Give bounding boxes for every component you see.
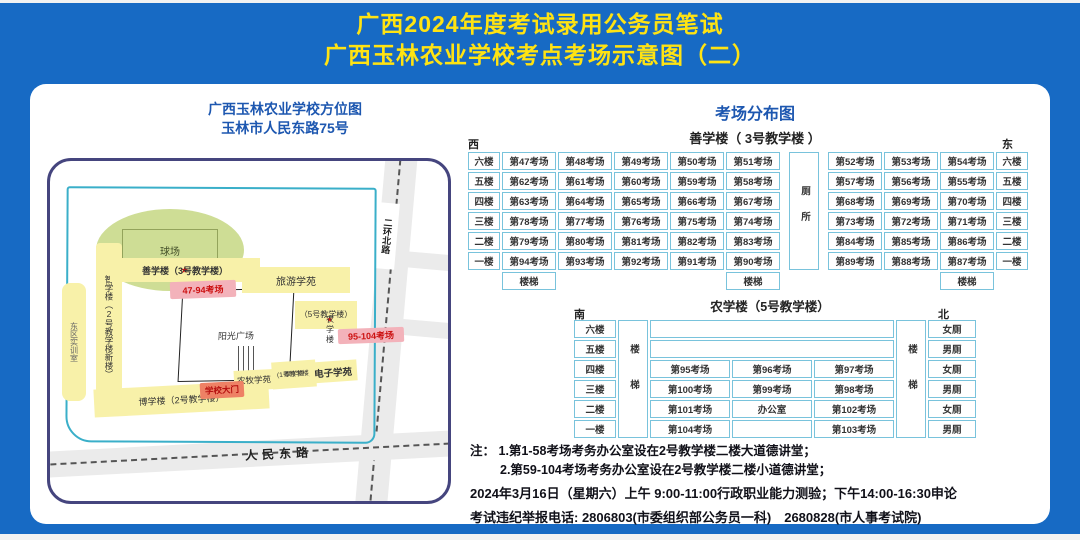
floor-label-cell: 一楼 bbox=[468, 252, 500, 270]
empty-cell bbox=[670, 272, 724, 290]
exam-room-cell: 第72考场 bbox=[884, 212, 938, 230]
exam-room-cell: 第76考场 bbox=[614, 212, 668, 230]
building1-name: 善学楼（ 3号教学楼 ） bbox=[480, 128, 1030, 147]
empty-cell bbox=[821, 272, 826, 290]
floor-label-cell: 五楼 bbox=[996, 172, 1028, 190]
floor-label-cell: 四楼 bbox=[468, 192, 500, 210]
poster-title-line2: 广西玉林农业学校考点考场示意图（二） bbox=[0, 40, 1080, 71]
exam-room-cell: 第92考场 bbox=[614, 252, 668, 270]
exam-room-cell: 第70考场 bbox=[940, 192, 994, 210]
exam-room-cell: 第101考场 bbox=[650, 400, 730, 418]
tourism-building: 旅游学苑 bbox=[242, 267, 350, 293]
building2-name: 农学楼（5号教学楼） bbox=[570, 296, 970, 315]
exam-room-cell: 第74考场 bbox=[726, 212, 780, 230]
bottom-edge-strip bbox=[0, 534, 1080, 540]
exam-room-cell: 第98考场 bbox=[814, 380, 894, 398]
exam-room-cell: 第54考场 bbox=[940, 152, 994, 170]
side-road-stub bbox=[397, 319, 451, 340]
empty-cell bbox=[884, 272, 938, 290]
floor-label-cell: 五楼 bbox=[468, 172, 500, 190]
exam-room-cell: 第93考场 bbox=[558, 252, 612, 270]
building2-table: 六楼楼梯楼梯女厕五楼男厕四楼第95考场第96考场第97考场女厕三楼第100考场第… bbox=[572, 318, 978, 440]
rooms-95-104-badge: 95-104考场 bbox=[338, 327, 404, 344]
school-gate: 学校大门 bbox=[200, 381, 245, 399]
floor-label-cell: 二楼 bbox=[468, 232, 500, 250]
exam-room-cell: 第63考场 bbox=[502, 192, 556, 210]
exam-room-cell: 第51考场 bbox=[726, 152, 780, 170]
toilet-cell: 厕所 bbox=[789, 152, 819, 270]
exam-room-cell: 第75考场 bbox=[670, 212, 724, 230]
stairs-cell: 楼梯 bbox=[940, 272, 994, 290]
poster-title: 广西2024年度考试录用公务员笔试 广西玉林农业学校考点考场示意图（二） bbox=[0, 9, 1080, 71]
spacer-cell bbox=[821, 152, 826, 270]
road-label-renmin: 人民东路 bbox=[245, 443, 314, 464]
shanxue-building-label: ★ 善学楼（3号教学楼） bbox=[110, 258, 260, 282]
exam-room-cell: 第65考场 bbox=[614, 192, 668, 210]
stairs-cell: 楼梯 bbox=[502, 272, 556, 290]
exam-room-cell: 第81考场 bbox=[614, 232, 668, 250]
toilet-cell: 男厕 bbox=[928, 340, 976, 358]
exam-room-cell: 第47考场 bbox=[502, 152, 556, 170]
distribution-title: 考场分布图 bbox=[480, 100, 1030, 124]
rooms-47-94-badge: 47-94考场 bbox=[170, 280, 237, 299]
stairs-cell: 楼梯 bbox=[896, 320, 926, 438]
training-room-building: 东区实训室 bbox=[62, 283, 86, 401]
floor-label-cell: 一楼 bbox=[996, 252, 1028, 270]
spacer-cell bbox=[782, 152, 787, 270]
empty-cell bbox=[828, 272, 882, 290]
exam-room-cell: 第77考场 bbox=[558, 212, 612, 230]
floor-label-cell: 六楼 bbox=[574, 320, 616, 338]
exam-room-cell: 第49考场 bbox=[614, 152, 668, 170]
floor-label-cell: 四楼 bbox=[996, 192, 1028, 210]
floor-label-cell: 六楼 bbox=[996, 152, 1028, 170]
exam-room-cell: 第68考场 bbox=[828, 192, 882, 210]
exam-room-cell: 第56考场 bbox=[884, 172, 938, 190]
empty-cell bbox=[558, 272, 612, 290]
exam-room-cell: 第58考场 bbox=[726, 172, 780, 190]
exam-room-cell: 第89考场 bbox=[828, 252, 882, 270]
floor-label-cell: 二楼 bbox=[574, 400, 616, 418]
exam-room-cell: 第97考场 bbox=[814, 360, 894, 378]
exam-room-cell: 第83考场 bbox=[726, 232, 780, 250]
exam-room-cell: 第91考场 bbox=[670, 252, 724, 270]
note-line3: 2024年3月16日（星期六）上午 9:00-11:00行政职业能力测验；下午1… bbox=[470, 483, 1030, 504]
map-title: 广西玉林农业学校方位图 玉林市人民东路75号 bbox=[90, 100, 480, 138]
note-label: 注： bbox=[470, 444, 495, 458]
top-edge-strip bbox=[0, 0, 1080, 3]
toilet-cell: 男厕 bbox=[928, 420, 976, 438]
exam-room-cell: 第100考场 bbox=[650, 380, 730, 398]
exam-room-cell: 第95考场 bbox=[650, 360, 730, 378]
exam-room-cell: 第94考场 bbox=[502, 252, 556, 270]
stairs-cell: 楼梯 bbox=[618, 320, 648, 438]
exam-room-cell: 第57考场 bbox=[828, 172, 882, 190]
note-line2: 2.第59-104考场考务办公室设在2号教学楼二楼小道德讲堂； bbox=[470, 461, 1030, 480]
empty-cell bbox=[614, 272, 668, 290]
exam-room-cell: 第102考场 bbox=[814, 400, 894, 418]
exam-room-cell: 第53考场 bbox=[884, 152, 938, 170]
stairs-cell: 楼梯 bbox=[726, 272, 780, 290]
empty-room-cell bbox=[650, 340, 894, 358]
agronomy-building-label: ★农学楼 （5号教学楼） bbox=[295, 301, 357, 329]
floor-label-cell: 三楼 bbox=[996, 212, 1028, 230]
empty-cell bbox=[468, 272, 500, 290]
empty-cell bbox=[789, 272, 819, 290]
agronomy-line2: （5号教学楼） bbox=[300, 310, 352, 320]
exam-room-cell: 第69考场 bbox=[884, 192, 938, 210]
floor-label-cell: 五楼 bbox=[574, 340, 616, 358]
exam-room-cell: 第86考场 bbox=[940, 232, 994, 250]
exam-room-cell: 第87考场 bbox=[940, 252, 994, 270]
exam-room-cell: 第80考场 bbox=[558, 232, 612, 250]
exam-room-cell: 第104考场 bbox=[650, 420, 730, 438]
exam-room-cell: 第64考场 bbox=[558, 192, 612, 210]
shanxue-building-text: 善学楼（3号教学楼） bbox=[142, 264, 228, 277]
exam-room-cell: 第71考场 bbox=[940, 212, 994, 230]
floor-label-cell: 六楼 bbox=[468, 152, 500, 170]
office-cell: 办公室 bbox=[732, 400, 812, 418]
building1-table: 六楼第47考场第48考场第49考场第50考场第51考场厕所第52考场第53考场第… bbox=[466, 150, 1030, 292]
exam-room-cell: 第82考场 bbox=[670, 232, 724, 250]
notes-block: 注： 1.第1-58考场考务办公室设在2号教学楼二楼大道德讲堂； 2.第59-1… bbox=[470, 442, 1030, 528]
floor-label-cell: 二楼 bbox=[996, 232, 1028, 250]
path-ticks bbox=[238, 346, 255, 372]
map-title-line1: 广西玉林农业学校方位图 bbox=[90, 100, 480, 119]
floor-label-cell: 四楼 bbox=[574, 360, 616, 378]
floor-label-cell: 一楼 bbox=[574, 420, 616, 438]
exam-room-cell: 第66考场 bbox=[670, 192, 724, 210]
exam-room-cell: 第55考场 bbox=[940, 172, 994, 190]
exam-room-cell: 第52考场 bbox=[828, 152, 882, 170]
empty-cell bbox=[996, 272, 1028, 290]
toilet-cell: 女厕 bbox=[928, 400, 976, 418]
exam-room-cell: 第79考场 bbox=[502, 232, 556, 250]
exam-room-cell: 第103考场 bbox=[814, 420, 894, 438]
exam-room-cell: 第78考场 bbox=[502, 212, 556, 230]
exam-room-cell: 第59考场 bbox=[670, 172, 724, 190]
floor-label-cell: 三楼 bbox=[574, 380, 616, 398]
floor-label-cell: 三楼 bbox=[468, 212, 500, 230]
exam-room-cell: 第62考场 bbox=[502, 172, 556, 190]
exam-room-cell: 第50考场 bbox=[670, 152, 724, 170]
toilet-cell: 女厕 bbox=[928, 320, 976, 338]
stairs-label: 楼梯 bbox=[904, 344, 918, 415]
exam-room-cell: 第48考场 bbox=[558, 152, 612, 170]
exam-room-cell: 第60考场 bbox=[614, 172, 668, 190]
toilet-cell: 女厕 bbox=[928, 360, 976, 378]
exam-room-cell: 第73考场 bbox=[828, 212, 882, 230]
poster-title-line1: 广西2024年度考试录用公务员笔试 bbox=[0, 9, 1080, 40]
exam-room-cell: 第85考场 bbox=[884, 232, 938, 250]
stairs-label: 楼梯 bbox=[626, 344, 640, 415]
campus-map: 二环北路 人民东路 球场 东区实训室 智学楼（2号教学楼新楼） ★ 善学楼（3号… bbox=[47, 158, 451, 504]
note-line1: 注： 1.第1-58考场考务办公室设在2号教学楼二楼大道德讲堂； bbox=[470, 442, 1030, 461]
note1-text: 1.第1-58考场考务办公室设在2号教学楼二楼大道德讲堂； bbox=[499, 444, 816, 458]
note-line4: 考试违纪举报电话: 2806803(市委组织部公务员一科) 2680828(市人… bbox=[470, 507, 1030, 528]
exam-room-cell: 第96考场 bbox=[732, 360, 812, 378]
exam-room-cell: 第67考场 bbox=[726, 192, 780, 210]
toilet-cell: 男厕 bbox=[928, 380, 976, 398]
empty-room-cell bbox=[650, 320, 894, 338]
toilet-label: 厕所 bbox=[797, 186, 811, 237]
electronics-building: 电子学苑 bbox=[308, 359, 357, 383]
exam-room-cell: 第61考场 bbox=[558, 172, 612, 190]
content-panel: 广西玉林农业学校方位图 玉林市人民东路75号 二环北路 人民东路 球场 东区实训… bbox=[30, 84, 1050, 524]
exam-room-cell: 第90考场 bbox=[726, 252, 780, 270]
houxue-line2: (1号教学楼) bbox=[277, 369, 311, 379]
exam-room-cell: 第88考场 bbox=[884, 252, 938, 270]
notice-poster: 广西2024年度考试录用公务员笔试 广西玉林农业学校考点考场示意图（二） 广西玉… bbox=[0, 0, 1080, 540]
empty-cell bbox=[782, 272, 787, 290]
empty-room-cell bbox=[732, 420, 812, 438]
exam-room-cell: 第84考场 bbox=[828, 232, 882, 250]
map-title-line2: 玉林市人民东路75号 bbox=[90, 119, 480, 138]
exam-room-cell: 第99考场 bbox=[732, 380, 812, 398]
